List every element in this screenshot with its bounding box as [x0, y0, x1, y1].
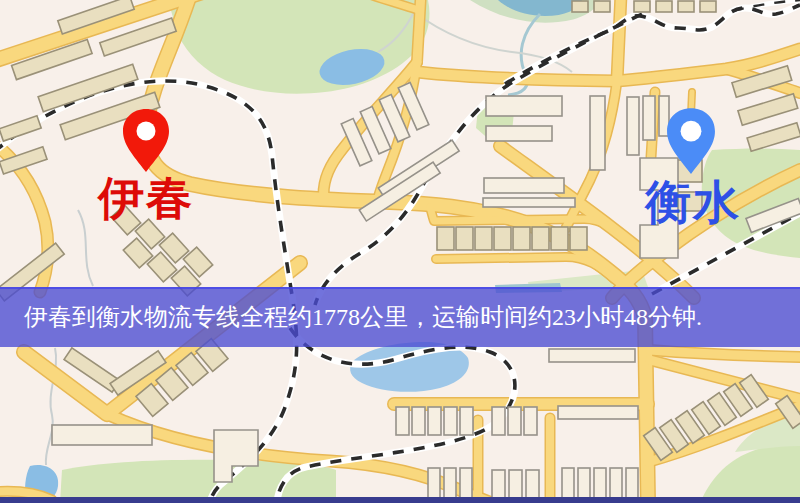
origin-pin-hole: [137, 122, 156, 141]
destination-marker-pin[interactable]: [666, 105, 716, 174]
bottom-banner-edge: [0, 497, 800, 503]
map-image: [0, 0, 800, 503]
map-canvas[interactable]: 伊春 衡水 伊春到衡水物流专线全程约1778公里，运输时间约23小时48分钟.: [0, 0, 800, 503]
origin-marker-pin[interactable]: [122, 106, 170, 172]
destination-pin-hole: [681, 121, 702, 142]
route-info-text: 伊春到衡水物流专线全程约1778公里，运输时间约23小时48分钟.: [0, 289, 800, 346]
route-info-banner: 伊春到衡水物流专线全程约1778公里，运输时间约23小时48分钟.: [0, 287, 800, 347]
